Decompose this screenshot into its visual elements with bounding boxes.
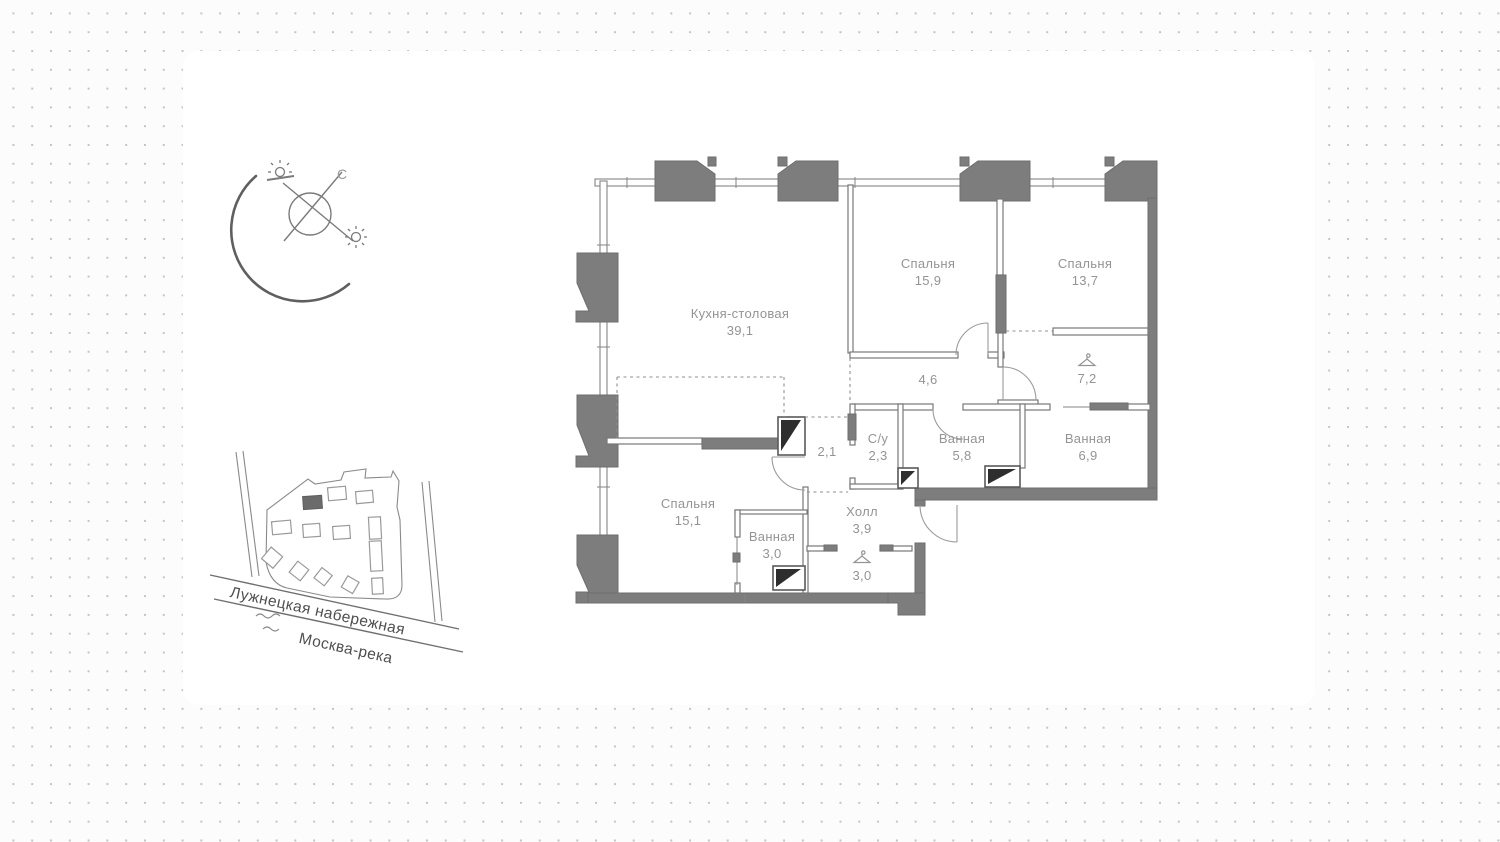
- hanger-icon: [852, 550, 872, 565]
- wave-icon: [263, 627, 279, 631]
- hanger-icon: [1077, 353, 1097, 368]
- room-label-hall: Холл 3,9: [846, 504, 878, 537]
- room-label-bedroom-2: Спальня 13,7: [1058, 256, 1112, 289]
- highlighted-building: [303, 495, 323, 509]
- floor-plan: [576, 157, 1157, 615]
- room-label-wardrobe-1: 7,2: [1078, 371, 1097, 388]
- room-label-passage: 2,1: [818, 444, 837, 461]
- sun-set-icon: [267, 160, 294, 180]
- room-label-bathroom-2: Ванная 6,9: [1065, 431, 1111, 464]
- floor-plan-scene: [0, 0, 1500, 842]
- room-label-wc: С/у 2,3: [868, 431, 888, 464]
- room-label-bathroom-1: Ванная 5,8: [939, 431, 985, 464]
- wave-icon: [256, 614, 280, 618]
- room-label-wardrobe-2: 3,0: [853, 568, 872, 585]
- room-label-bathroom-3: Ванная 3,0: [749, 529, 795, 562]
- facade-piers-left: [576, 253, 618, 603]
- room-label-bedroom-3: Спальня 15,1: [661, 496, 715, 529]
- room-label-bedroom-1: Спальня 15,9: [901, 256, 955, 289]
- room-label-kitchen: Кухня-столовая 39,1: [691, 306, 790, 339]
- compass-north-label: С: [337, 166, 348, 182]
- room-label-corridor: 4,6: [919, 372, 938, 389]
- interior-walls: [607, 185, 1150, 593]
